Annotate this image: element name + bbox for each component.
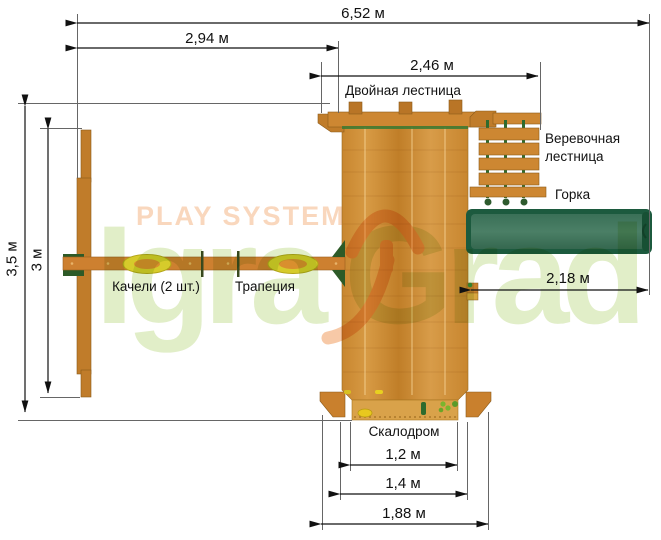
label-rope-ladder-line2: лестница xyxy=(545,149,604,164)
dim-swing-beam-depth: 3 м xyxy=(29,249,46,272)
label-swings: Качели (2 шт.) xyxy=(112,279,200,294)
label-climbing-wall: Скалодром xyxy=(369,424,440,439)
label-slide: Горка xyxy=(555,187,590,202)
playground-plan-canvas: PLAY SYSTEM Igra Grad xyxy=(0,0,661,540)
dim-double-ladder-width: 2,46 м xyxy=(410,57,454,74)
dim-base-width: 1,88 м xyxy=(382,505,426,522)
dim-total-width: 6,52 м xyxy=(341,5,385,22)
dim-swing-span: 2,94 м xyxy=(185,30,229,47)
dim-climbing-wall-outer: 1,4 м xyxy=(385,475,420,492)
dim-total-depth: 3,5 м xyxy=(4,241,21,276)
label-double-ladder: Двойная лестница xyxy=(345,83,461,98)
dim-slide-length: 2,18 м xyxy=(546,270,590,287)
dim-climbing-wall-inner: 1,2 м xyxy=(385,446,420,463)
label-trapeze: Трапеция xyxy=(235,279,295,294)
label-rope-ladder-line1: Веревочная xyxy=(545,131,620,146)
